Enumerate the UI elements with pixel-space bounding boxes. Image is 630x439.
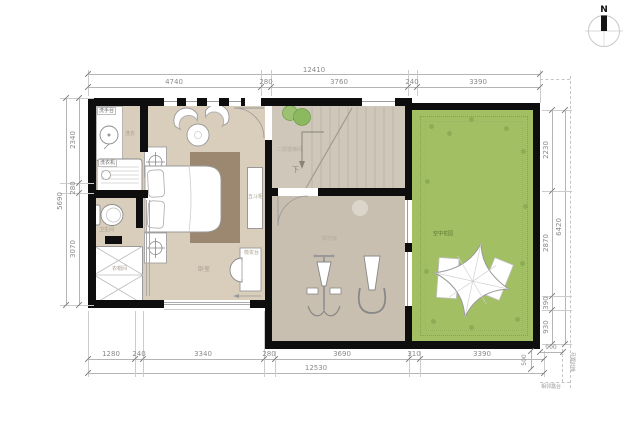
sill-leader xyxy=(232,293,262,299)
opening-top xyxy=(245,98,261,106)
dim-top-seg-4: 3390 xyxy=(469,78,487,86)
dim-top-seg-3: 240 xyxy=(405,78,418,86)
cabinet-label: 五斗柜 xyxy=(248,194,263,201)
laundry-label: 洗衣 xyxy=(125,131,135,138)
dim-top-seg-2: 3760 xyxy=(330,78,348,86)
dim-corner-height: 500 xyxy=(521,354,529,365)
dim-right-total-line xyxy=(565,110,566,344)
corner-bottom-label: 相邻露台 xyxy=(541,383,561,391)
window-stairwell xyxy=(362,98,395,106)
dim-right-seg-1: 2870 xyxy=(542,234,550,252)
dim-bottom-seg-5: 310 xyxy=(407,350,420,358)
washer-tag: 洗衣机 xyxy=(98,159,117,167)
sliding-door-track-1 xyxy=(146,200,147,296)
wall-garden-right xyxy=(533,103,540,349)
window-bedroom-2 xyxy=(186,98,197,106)
window-bedroom-3 xyxy=(207,98,219,106)
dim-bottom-seg-1: 240 xyxy=(132,350,145,358)
dim-bottom-seg-4: 3690 xyxy=(333,350,351,358)
bedroom-label: 卧室 xyxy=(198,266,210,273)
gym-equipment xyxy=(300,248,392,324)
exercise-bench xyxy=(307,255,341,316)
dim-right-total: 6420 xyxy=(555,218,563,236)
dim-bottom-seg-6: 3390 xyxy=(473,350,491,358)
dim-left-seg-line xyxy=(79,98,80,305)
dim-bottom-total: 12530 xyxy=(305,364,327,372)
bedroom-door-swing xyxy=(233,106,267,140)
chair xyxy=(230,258,242,282)
dim-right-seg-2: 390 xyxy=(542,296,550,309)
bathroom-label: 卫生间 xyxy=(99,227,114,234)
dim-top-seg-line xyxy=(88,87,540,88)
toilet xyxy=(90,202,130,228)
dim-top-total: 12410 xyxy=(303,66,325,74)
glass-door-garden-2 xyxy=(405,252,412,306)
wall-laundry-toilet xyxy=(88,190,148,198)
glass-door-garden-1 xyxy=(405,200,412,243)
wall-sunroom-garden-pier2 xyxy=(405,243,412,252)
wall-laundry-divider xyxy=(140,106,148,152)
closet-label: 衣帽间 xyxy=(112,266,127,273)
dim-right-seg-0: 2230 xyxy=(542,141,550,159)
wall-toilet-right xyxy=(136,198,143,228)
dim-left-total: 5690 xyxy=(56,192,64,210)
sunroom-door-swing xyxy=(276,194,320,238)
stairwell-label: 二层楼梯间 xyxy=(277,147,302,154)
exercise-machine xyxy=(359,256,386,313)
garden-foliage-dots xyxy=(0,0,3,3)
wall-stair-right xyxy=(405,106,412,196)
north-pointer xyxy=(601,16,607,32)
stair-break-line xyxy=(306,108,352,188)
dim-bottom-total-line xyxy=(88,373,544,374)
dim-right-seg-3: 930 xyxy=(542,320,550,333)
sink-tag: 洗手台 xyxy=(97,107,116,115)
tea-table xyxy=(187,124,209,146)
stair-down-label: 下 xyxy=(292,167,299,174)
dim-corner-width: 900 xyxy=(545,344,556,352)
wall-garden-top xyxy=(412,103,540,110)
dim-bottom-seg-line xyxy=(88,359,544,360)
wardrobe-x-lines xyxy=(94,246,143,304)
plant-icon xyxy=(283,106,311,126)
corner-side-label: 相邻露台 xyxy=(570,352,578,372)
wall-bottom-long xyxy=(265,341,540,349)
ceiling-lamp-faint xyxy=(352,200,368,216)
sill-line xyxy=(164,309,250,310)
dim-left-total-line xyxy=(66,98,67,305)
window-bedroom-4 xyxy=(229,98,241,106)
window-bedroom-south xyxy=(164,300,250,308)
floor-plan: 洗手台 洗衣 洗衣机 卫生间 衣帽间 五斗柜 梳妆台 卧室 xyxy=(0,0,630,439)
stair-treads xyxy=(312,107,393,189)
sitting-area xyxy=(165,100,237,152)
dim-bottom-seg-0: 1280 xyxy=(102,350,120,358)
dim-top-seg-1: 280 xyxy=(259,78,272,86)
dresser-label: 梳妆台 xyxy=(244,250,259,257)
dim-left-seg-2: 3070 xyxy=(69,240,77,258)
sunroom-label: 阳光房 xyxy=(322,236,337,243)
wall-pier-hall xyxy=(105,236,122,244)
window-bedroom-1 xyxy=(164,98,177,106)
garden-label: 空中花园 xyxy=(433,231,453,238)
dim-top-seg-0: 4740 xyxy=(165,78,183,86)
pillow xyxy=(147,170,164,198)
wall-left xyxy=(88,98,96,308)
north-label: N xyxy=(600,5,608,15)
north-arrow: N xyxy=(580,2,628,50)
dim-bottom-seg-2: 3340 xyxy=(194,350,212,358)
dim-left-seg-1: 280 xyxy=(69,181,77,194)
gazebo xyxy=(428,238,516,322)
dim-top-total-line xyxy=(88,74,540,75)
sliding-door-track-2 xyxy=(149,200,150,296)
dim-left-seg-0: 2340 xyxy=(69,131,77,149)
dim-bottom-seg-3: 280 xyxy=(262,350,275,358)
